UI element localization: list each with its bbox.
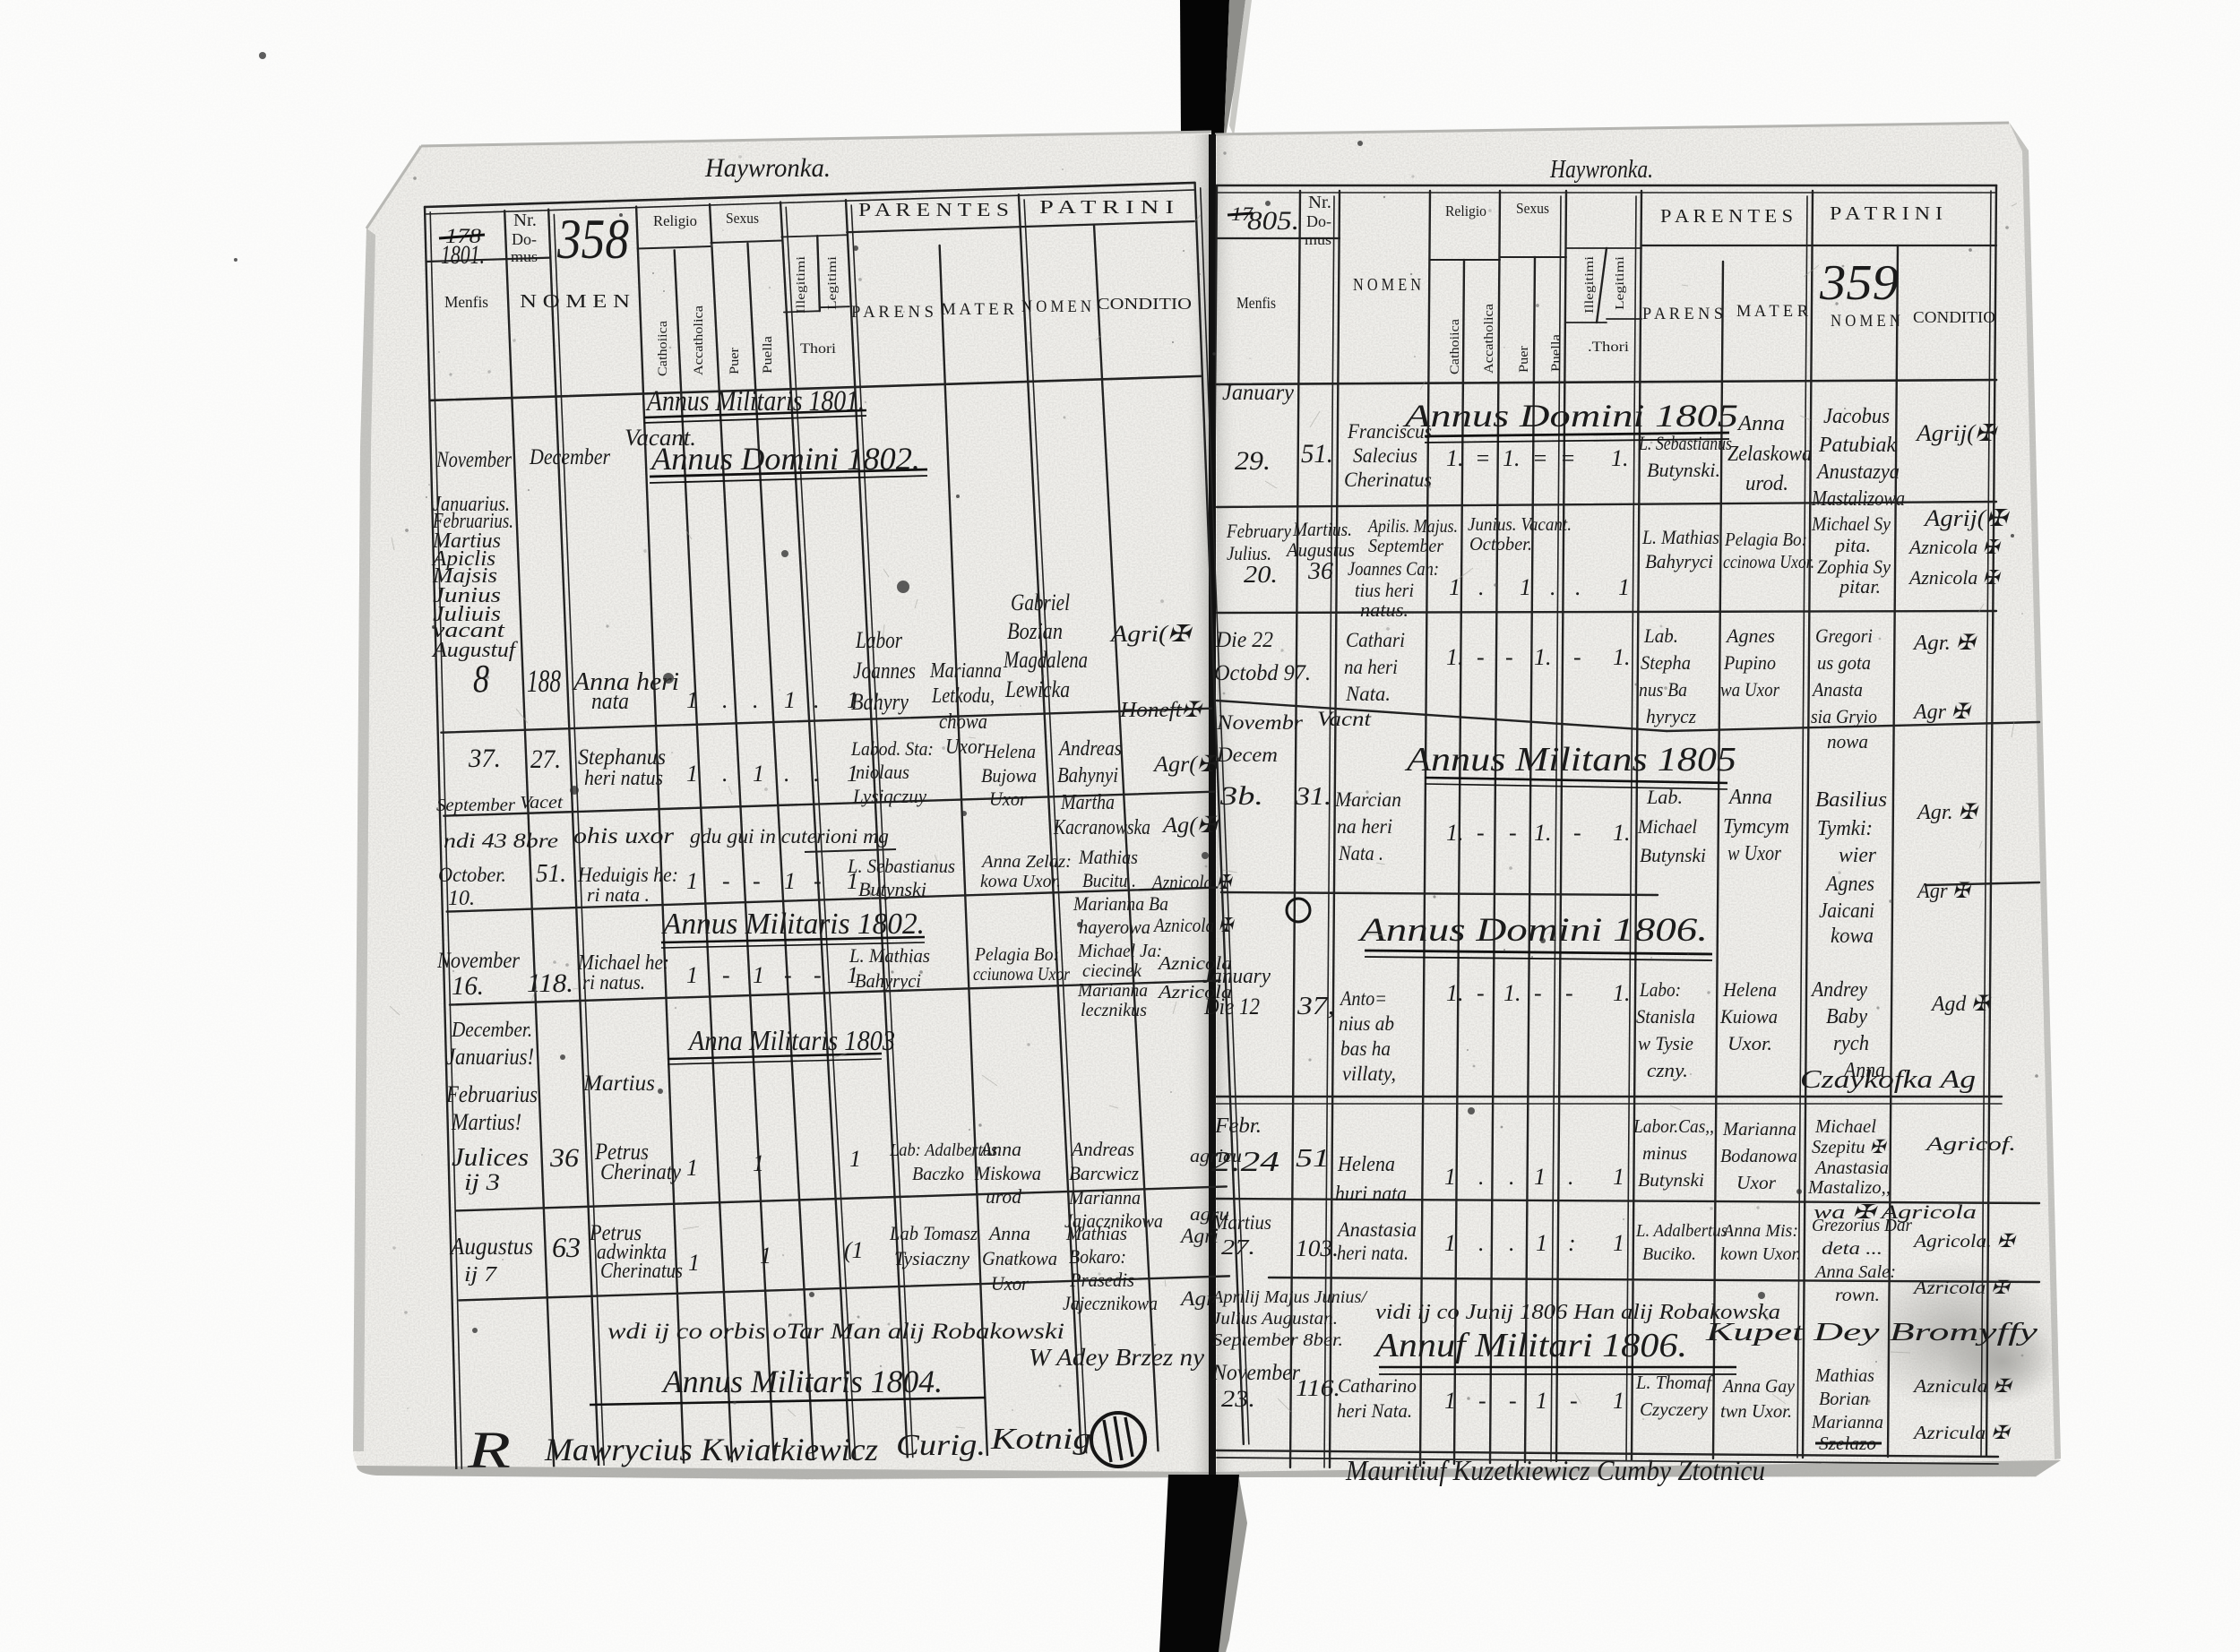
- svg-text:1: 1: [1536, 1230, 1547, 1256]
- svg-text:Legitimi: Legitimi: [826, 256, 840, 310]
- svg-text:Bahynyi: Bahynyi: [1057, 764, 1118, 787]
- svg-text:Anna Zelaz:: Anna Zelaz:: [980, 852, 1072, 872]
- svg-text:1.: 1.: [1613, 980, 1631, 1006]
- svg-text:rown.: rown.: [1835, 1286, 1880, 1305]
- svg-text:N O M E N: N O M E N: [1021, 297, 1091, 316]
- svg-text:Marianna Ba: Marianna Ba: [1073, 892, 1168, 915]
- svg-text:Azricola ✠: Azricola ✠: [1912, 1277, 2012, 1298]
- svg-text:-: -: [1478, 1388, 1486, 1414]
- svg-text:Aznicola ✠: Aznicola ✠: [1150, 871, 1233, 893]
- svg-text:-: -: [1505, 644, 1513, 670]
- svg-text:R: R: [467, 1421, 511, 1479]
- svg-text:P A T R I N I: P A T R I N I: [1039, 196, 1174, 218]
- svg-text:1.: 1.: [1534, 644, 1552, 670]
- svg-text:Bucitu .: Bucitu .: [1082, 869, 1136, 891]
- svg-text:805.: 805.: [1247, 206, 1299, 236]
- svg-text:1.: 1.: [1611, 445, 1629, 471]
- svg-text:Agnes: Agnes: [1824, 873, 1874, 896]
- svg-text:Anna: Anna: [1736, 412, 1785, 435]
- svg-text:Novembr: Novembr: [1216, 711, 1304, 734]
- svg-text:.: .: [1478, 574, 1485, 600]
- svg-text:December: December: [529, 445, 610, 469]
- svg-text:-: -: [722, 868, 730, 894]
- svg-text:-: -: [784, 962, 792, 988]
- svg-text:chowa: chowa: [939, 710, 987, 734]
- svg-text:1: 1: [849, 1146, 861, 1172]
- svg-text:118.: 118.: [527, 968, 573, 998]
- svg-text:Julius Augustan.: Julius Augustan.: [1212, 1309, 1338, 1329]
- svg-text:27.: 27.: [1221, 1236, 1255, 1260]
- svg-text:Lab.: Lab.: [1643, 624, 1678, 647]
- svg-text:Michael: Michael: [1814, 1115, 1876, 1137]
- svg-text:Cherinatus: Cherinatus: [1344, 469, 1432, 491]
- svg-text:sia Gryio: sia Gryio: [1811, 705, 1877, 727]
- svg-text:Azricula ✠: Azricula ✠: [1912, 1422, 2012, 1443]
- svg-text:L. Adalbertus: L. Adalbertus: [1635, 1221, 1727, 1241]
- svg-text:1: 1: [1613, 1388, 1624, 1414]
- svg-text:heri natus: heri natus: [584, 767, 663, 790]
- svg-text:Czyczery: Czyczery: [1640, 1398, 1709, 1420]
- svg-text:CONDITIO: CONDITIO: [1097, 295, 1192, 313]
- svg-text:-: -: [814, 868, 822, 894]
- svg-text:Jajecznikowa: Jajecznikowa: [1063, 1292, 1158, 1314]
- svg-text:.: .: [784, 761, 790, 787]
- svg-text:31.: 31.: [1295, 783, 1331, 811]
- svg-text:urod.: urod.: [1745, 472, 1788, 495]
- svg-text:w Uxor: w Uxor: [1727, 842, 1782, 865]
- svg-text:=: =: [1532, 445, 1548, 471]
- svg-text:November: November: [435, 448, 512, 472]
- svg-text:Aznicola ✠: Aznicola ✠: [1908, 566, 2002, 589]
- svg-text:16.: 16.: [452, 971, 484, 1001]
- svg-text:-: -: [1509, 1388, 1517, 1414]
- svg-text:November: November: [436, 949, 520, 973]
- svg-text:Labor: Labor: [855, 627, 903, 653]
- svg-text:Menfis: Menfis: [444, 293, 488, 311]
- svg-text:63: 63: [552, 1231, 581, 1263]
- svg-text:36: 36: [549, 1143, 579, 1173]
- svg-text:October.: October.: [438, 864, 506, 886]
- svg-text:Haywronka.: Haywronka.: [704, 153, 831, 183]
- svg-text:1: 1: [686, 868, 698, 894]
- svg-text:Do-: Do-: [512, 230, 537, 248]
- svg-text:Jacobus: Jacobus: [1823, 405, 1890, 428]
- svg-text:Annus Domini 1805: Annus Domini 1805: [1402, 398, 1738, 434]
- svg-text:W Adey Brzez ny: W Adey Brzez ny: [1029, 1344, 1204, 1371]
- svg-text:Decem: Decem: [1216, 744, 1278, 766]
- svg-text:ri natus.: ri natus.: [582, 971, 645, 994]
- svg-text:Tymki:: Tymki:: [1817, 817, 1873, 840]
- svg-text:Basilius: Basilius: [1815, 788, 1887, 812]
- svg-text:1: 1: [753, 962, 764, 988]
- svg-text:Butynski.: Butynski.: [1647, 459, 1720, 481]
- svg-text:Uxor.: Uxor.: [1727, 1032, 1772, 1054]
- svg-text:Agricola. ✠: Agricola. ✠: [1912, 1230, 2017, 1252]
- svg-text:Kupet Dey Bromyffy: Kupet Dey Bromyffy: [1704, 1318, 2038, 1347]
- svg-text:L. Mathias: L. Mathias: [849, 944, 930, 967]
- svg-text:Sexus: Sexus: [1516, 200, 1549, 217]
- svg-text:1.: 1.: [1446, 820, 1464, 846]
- svg-text:Julices: Julices: [452, 1143, 529, 1172]
- svg-text:Vacnt: Vacnt: [1317, 708, 1372, 730]
- svg-text:Lysiqczuy: Lysiqczuy: [852, 785, 926, 807]
- svg-text:huri nata: huri nata: [1335, 1183, 1407, 1206]
- svg-text:Annuf Militari 1806.: Annuf Militari 1806.: [1373, 1327, 1687, 1364]
- svg-text:103.: 103.: [1296, 1235, 1339, 1261]
- svg-text:Stanisla: Stanisla: [1636, 1005, 1695, 1028]
- svg-text:-: -: [1477, 644, 1485, 670]
- svg-text:.: .: [1509, 1230, 1515, 1256]
- svg-text:Legitimi: Legitimi: [1614, 256, 1627, 310]
- svg-text:1: 1: [753, 761, 764, 787]
- svg-text:.: .: [1478, 1230, 1485, 1256]
- svg-text:3b.: 3b.: [1219, 781, 1263, 811]
- svg-text:37,: 37,: [1297, 993, 1335, 1020]
- svg-text:Butynski: Butynski: [1638, 1169, 1704, 1191]
- svg-text:Agrij(✠: Agrij(✠: [1923, 505, 2011, 531]
- svg-text:January: January: [1202, 965, 1271, 988]
- svg-text:Agr(✠: Agr(✠: [1152, 753, 1219, 777]
- svg-text:51: 51: [1296, 1145, 1330, 1173]
- svg-text:Letkodu,: Letkodu,: [931, 684, 995, 708]
- svg-text:Mauritiuf Kuzetkiewicz Cumby Z: Mauritiuf Kuzetkiewicz Cumby Ztotnicu: [1345, 1454, 1765, 1486]
- svg-text:Andreas: Andreas: [1057, 737, 1122, 761]
- svg-text:Anastasia: Anastasia: [1814, 1157, 1889, 1178]
- svg-text:.: .: [722, 761, 728, 787]
- svg-text:cciunowa Uxor: cciunowa Uxor: [973, 963, 1071, 985]
- svg-text:Cherinatus: Cherinatus: [600, 1260, 683, 1283]
- svg-text:P A R E N S: P A R E N S: [1642, 305, 1723, 323]
- svg-text:-: -: [1573, 644, 1581, 670]
- svg-text:Pupino: Pupino: [1723, 651, 1776, 674]
- svg-text:Andrey: Andrey: [1810, 978, 1867, 1002]
- svg-text:Februarius: Februarius: [445, 1081, 538, 1107]
- svg-text:Apilis. Majus.: Apilis. Majus.: [1366, 515, 1458, 537]
- svg-text:Jaicani: Jaicani: [1819, 899, 1874, 923]
- svg-text:Agnes: Agnes: [1725, 624, 1775, 647]
- svg-text:Pelagia Bo:: Pelagia Bo:: [1724, 529, 1807, 550]
- svg-text:ohis uxor: ohis uxor: [573, 824, 674, 848]
- svg-text:Gregori: Gregori: [1815, 624, 1873, 647]
- svg-text:pita.: pita.: [1833, 534, 1871, 556]
- svg-text:Barcwicz: Barcwicz: [1069, 1162, 1139, 1184]
- svg-text:September: September: [1368, 535, 1444, 556]
- svg-text:(1: (1: [844, 1237, 864, 1263]
- svg-text:Prasedis: Prasedis: [1069, 1269, 1134, 1291]
- svg-text:Mastalizowa: Mastalizowa: [1811, 487, 1905, 511]
- svg-text:Agr. ✠: Agr. ✠: [1912, 632, 1977, 655]
- svg-text:Agrij(✠: Agrij(✠: [1915, 420, 1998, 446]
- svg-text:.: .: [814, 687, 820, 713]
- svg-text:Aznicula ✠: Aznicula ✠: [1912, 1375, 2013, 1397]
- svg-text:Andreas: Andreas: [1070, 1138, 1134, 1160]
- svg-text:Labod. Sta:: Labod. Sta:: [850, 737, 934, 760]
- svg-text:Aprilij Majus Junius/: Aprilij Majus Junius/: [1210, 1287, 1368, 1307]
- svg-text:Butynski: Butynski: [1640, 844, 1706, 866]
- svg-text:Labor.Cas,,: Labor.Cas,,: [1633, 1115, 1714, 1137]
- svg-text:Martius!: Martius!: [451, 1109, 521, 1135]
- svg-text:Cathari: Cathari: [1346, 629, 1405, 651]
- svg-text:natus.: natus.: [1360, 598, 1409, 621]
- svg-text:1.: 1.: [1446, 644, 1464, 670]
- svg-text:Uxor: Uxor: [989, 787, 1027, 810]
- svg-text:Illegitimi: Illegitimi: [795, 256, 808, 314]
- svg-text:Anastasia: Anastasia: [1336, 1218, 1417, 1241]
- svg-text:Religio: Religio: [653, 212, 697, 229]
- svg-text:Mawrycius Kwiatkiewicz: Mawrycius Kwiatkiewicz: [544, 1432, 878, 1467]
- svg-text:.: .: [1509, 1164, 1515, 1190]
- svg-text:Aznicola ✠: Aznicola ✠: [1152, 914, 1235, 936]
- svg-text:Illegitimi: Illegitimi: [1583, 256, 1597, 314]
- svg-text:116.: 116.: [1296, 1375, 1340, 1401]
- svg-text:Patubiak: Patubiak: [1818, 434, 1896, 457]
- svg-text:1: 1: [686, 962, 698, 988]
- svg-text:heri Nata.: heri Nata.: [1337, 1399, 1412, 1422]
- svg-text:February: February: [1226, 520, 1291, 542]
- svg-text:wier: wier: [1839, 844, 1877, 867]
- svg-text:Puer: Puer: [728, 348, 742, 374]
- svg-text:December.: December.: [451, 1019, 532, 1042]
- svg-text:20.: 20.: [1244, 561, 1278, 588]
- svg-text:ri nata .: ri nata .: [587, 883, 650, 906]
- svg-text:Uxor: Uxor: [945, 736, 986, 759]
- svg-text:Cathoiica: Cathoiica: [656, 321, 670, 376]
- svg-text:ndi 43 8bre: ndi 43 8bre: [444, 830, 558, 852]
- svg-text:Kuiowa: Kuiowa: [1719, 1005, 1778, 1028]
- svg-text:Salecius: Salecius: [1353, 444, 1417, 467]
- svg-text:M A T E R: M A T E R: [941, 300, 1014, 319]
- svg-text:Agr ✠: Agr ✠: [1912, 701, 1972, 724]
- svg-text:pitar.: pitar.: [1838, 575, 1881, 598]
- svg-text:Tymcym: Tymcym: [1723, 815, 1789, 839]
- svg-text:Nr.: Nr.: [1308, 193, 1331, 212]
- svg-text:Grezorius Dar: Grezorius Dar: [1812, 1216, 1912, 1235]
- svg-text:Junius. Vacant.: Junius. Vacant.: [1468, 513, 1572, 535]
- svg-text:359: 359: [1819, 255, 1899, 311]
- svg-text:Accatholica: Accatholica: [692, 305, 706, 375]
- svg-text:kowa Uxor.: kowa Uxor.: [980, 872, 1061, 891]
- svg-text:1.: 1.: [1613, 820, 1631, 846]
- svg-text:Agr: Agr: [1179, 1287, 1216, 1310]
- svg-text:Octobd 97.: Octobd 97.: [1214, 661, 1311, 685]
- svg-text:Martha: Martha: [1060, 791, 1115, 814]
- svg-text:us gota: us gota: [1817, 651, 1871, 674]
- svg-text:-: -: [1565, 980, 1573, 1006]
- svg-text:1: 1: [1444, 1388, 1456, 1414]
- svg-text:L. Mathias: L. Mathias: [1641, 526, 1719, 548]
- svg-text:51.: 51.: [1301, 439, 1333, 469]
- svg-text:.: .: [1575, 574, 1581, 600]
- svg-text:1: 1: [1444, 1164, 1456, 1190]
- svg-text:January: January: [1222, 381, 1295, 405]
- svg-text:Ag(✠: Ag(✠: [1161, 813, 1219, 838]
- svg-text:Michael Ja:: Michael Ja:: [1077, 940, 1162, 961]
- svg-text:mus: mus: [511, 248, 538, 265]
- svg-text:czny.: czny.: [1647, 1059, 1688, 1081]
- svg-text:Annus Militaris 1804.: Annus Militaris 1804.: [661, 1364, 943, 1399]
- svg-text:Marianna: Marianna: [1077, 979, 1148, 1001]
- svg-text:N O M E N: N O M E N: [520, 290, 630, 312]
- svg-text:kowa: kowa: [1831, 925, 1874, 948]
- svg-text:Gabriel: Gabriel: [1011, 589, 1070, 615]
- svg-text:-: -: [722, 962, 730, 988]
- svg-text:=: =: [1475, 445, 1491, 471]
- svg-text:Szepitu ✠: Szepitu ✠: [1812, 1136, 1887, 1157]
- svg-text:N O M E N: N O M E N: [1831, 312, 1900, 331]
- svg-text:N O M E N: N O M E N: [1353, 275, 1421, 295]
- svg-text:ij 3: ij 3: [464, 1169, 500, 1195]
- svg-text:Bahyry: Bahyry: [851, 689, 909, 715]
- svg-text:P A R E N S: P A R E N S: [851, 303, 934, 322]
- svg-text:CONDITIO: CONDITIO: [1913, 308, 1995, 326]
- svg-text:1: 1: [688, 1250, 700, 1276]
- svg-text:Bahyryci: Bahyryci: [855, 969, 921, 992]
- svg-text:.: .: [1568, 1164, 1574, 1190]
- svg-text:1.: 1.: [1446, 445, 1464, 471]
- svg-text:Puella: Puella: [1549, 334, 1564, 372]
- svg-text:Stephanus: Stephanus: [578, 745, 666, 770]
- svg-text:villaty,: villaty,: [1342, 1063, 1396, 1085]
- svg-text:Agri(✠: Agri(✠: [1109, 621, 1193, 647]
- svg-text:Augustus: Augustus: [449, 1233, 533, 1260]
- svg-text:-: -: [1570, 1388, 1578, 1414]
- svg-text:.: .: [722, 687, 728, 713]
- svg-text:nius ab: nius ab: [1339, 1012, 1394, 1035]
- svg-text:37.: 37.: [468, 744, 501, 773]
- svg-text:-: -: [1534, 980, 1542, 1006]
- svg-text:Marianna: Marianna: [1068, 1186, 1141, 1209]
- svg-text:M A T E R: M A T E R: [1736, 302, 1808, 321]
- svg-text:P A T R I N I: P A T R I N I: [1830, 202, 1943, 224]
- svg-text:Stepha: Stepha: [1641, 651, 1691, 674]
- svg-text:1: 1: [1534, 1164, 1546, 1190]
- svg-text:1: 1: [686, 1155, 698, 1181]
- svg-text:Agr. ✠: Agr. ✠: [1916, 801, 1979, 824]
- svg-text:Puer: Puer: [1517, 346, 1531, 373]
- svg-text:Lab Tomasz: Lab Tomasz: [889, 1222, 978, 1244]
- svg-text:Zelaskowa: Zelaskowa: [1727, 443, 1812, 466]
- svg-text:Uxor: Uxor: [1736, 1172, 1777, 1193]
- svg-text:Haywronka.: Haywronka.: [1549, 156, 1653, 184]
- svg-text:nata: nata: [591, 688, 629, 714]
- svg-text:Baczko: Baczko: [912, 1163, 964, 1184]
- svg-text:Annus Militaris 1802.: Annus Militaris 1802.: [661, 908, 925, 941]
- svg-text:Bahyryci: Bahyryci: [1645, 550, 1713, 572]
- svg-text:Helena: Helena: [983, 740, 1036, 762]
- svg-text:bas ha: bas ha: [1340, 1037, 1391, 1060]
- svg-text:Pelagia Bo:: Pelagia Bo:: [974, 943, 1059, 965]
- svg-text:.Thori: .Thori: [1588, 340, 1630, 355]
- svg-text:.: .: [1550, 574, 1556, 600]
- svg-text:November: November: [1211, 1361, 1300, 1385]
- svg-text:1: 1: [753, 1150, 764, 1176]
- svg-text:36: 36: [1307, 557, 1334, 584]
- svg-text:lecznikus: lecznikus: [1081, 999, 1147, 1020]
- svg-text:Magdalena: Magdalena: [1003, 647, 1088, 673]
- svg-text:Czaykofka Ag: Czaykofka Ag: [1800, 1066, 1976, 1094]
- svg-text:1.: 1.: [1446, 980, 1464, 1006]
- svg-text:Bozian: Bozian: [1007, 618, 1063, 644]
- svg-text:L. Thomaf: L. Thomaf: [1635, 1372, 1714, 1393]
- svg-text:Mathias: Mathias: [1065, 1222, 1127, 1244]
- svg-text:1: 1: [1618, 574, 1630, 600]
- svg-text:Marianna: Marianna: [1722, 1118, 1796, 1140]
- svg-text:Martius: Martius: [582, 1071, 655, 1096]
- svg-text:Anna Gay: Anna Gay: [1721, 1375, 1796, 1397]
- svg-text:hyrycz: hyrycz: [1646, 705, 1696, 727]
- svg-text:Bokaro:: Bokaro:: [1069, 1245, 1126, 1268]
- svg-text:-: -: [814, 962, 822, 988]
- svg-text:1: 1: [1613, 1164, 1624, 1190]
- svg-text:Miskowa: Miskowa: [974, 1162, 1041, 1184]
- svg-text::: :: [1568, 1230, 1576, 1256]
- svg-text:Gnatkowa: Gnatkowa: [982, 1247, 1057, 1269]
- svg-text:=: =: [1560, 445, 1576, 471]
- svg-text:.: .: [814, 761, 820, 787]
- svg-text:Anna Mis:: Anna Mis:: [1721, 1221, 1798, 1241]
- svg-text:1: 1: [1536, 1388, 1547, 1414]
- svg-text:twn Uxor.: twn Uxor.: [1720, 1400, 1792, 1422]
- svg-text:1: 1: [1613, 1230, 1624, 1256]
- svg-text:Kacranowska: Kacranowska: [1053, 816, 1150, 839]
- svg-text:Anna Militaris 1803: Anna Militaris 1803: [687, 1024, 895, 1056]
- svg-text:Helena: Helena: [1722, 978, 1777, 1001]
- svg-text:w Tysie: w Tysie: [1638, 1032, 1693, 1054]
- svg-text:niolaus: niolaus: [856, 761, 909, 783]
- svg-text:29.: 29.: [1235, 446, 1271, 476]
- svg-text:-: -: [1509, 820, 1517, 846]
- svg-text:Franciscus: Franciscus: [1347, 420, 1432, 443]
- svg-text:Accatholica: Accatholica: [1482, 304, 1496, 374]
- svg-text:188: 188: [527, 663, 561, 699]
- svg-text:Lab.: Lab.: [1646, 786, 1683, 808]
- svg-text:Nr.: Nr.: [513, 211, 537, 230]
- svg-text:ciecinek: ciecinek: [1082, 959, 1142, 981]
- svg-text:Nata.: Nata.: [1345, 683, 1391, 705]
- svg-text:1: 1: [686, 687, 698, 713]
- svg-text:Agd ✠: Agd ✠: [1930, 993, 1992, 1016]
- svg-text:10.: 10.: [448, 887, 475, 910]
- svg-text:Tysiaczny: Tysiaczny: [894, 1247, 969, 1269]
- svg-text:September 8ber.: September 8ber.: [1212, 1330, 1343, 1350]
- svg-text:kown Uxor.: kown Uxor.: [1720, 1244, 1801, 1264]
- svg-text:Mathias: Mathias: [1078, 846, 1138, 868]
- svg-text:Lewicka: Lewicka: [1004, 676, 1070, 702]
- svg-text:.: .: [753, 687, 759, 713]
- svg-text:nus Ba: nus Ba: [1639, 678, 1687, 701]
- svg-text:Annus Militaris 1801.: Annus Militaris 1801.: [645, 385, 865, 417]
- svg-text:Baby: Baby: [1826, 1005, 1867, 1028]
- svg-text:.: .: [1478, 1164, 1485, 1190]
- svg-text:na heri: na heri: [1344, 656, 1398, 678]
- svg-text:Anna: Anna: [1727, 786, 1772, 809]
- svg-text:Anasta: Anasta: [1811, 678, 1863, 701]
- svg-text:Aznicola ✠: Aznicola ✠: [1908, 536, 2002, 558]
- svg-text:Thori: Thori: [800, 341, 837, 357]
- svg-text:Marianna: Marianna: [929, 659, 1002, 683]
- svg-text:Agricof.: Agricof.: [1924, 1132, 2016, 1155]
- svg-text:P A R E N T E S: P A R E N T E S: [858, 199, 1009, 220]
- svg-text:Joannes: Joannes: [853, 658, 916, 684]
- svg-text:Butynski: Butynski: [858, 878, 926, 900]
- svg-text:Anto=: Anto=: [1339, 987, 1387, 1010]
- svg-text:October.: October.: [1469, 533, 1532, 555]
- svg-text:Religio: Religio: [1445, 202, 1486, 219]
- svg-text:hayerowa: hayerowa: [1079, 916, 1150, 938]
- svg-text:Do-: Do-: [1306, 212, 1331, 230]
- svg-text:1.: 1.: [1503, 980, 1521, 1006]
- svg-text:Michael Sy: Michael Sy: [1811, 512, 1891, 535]
